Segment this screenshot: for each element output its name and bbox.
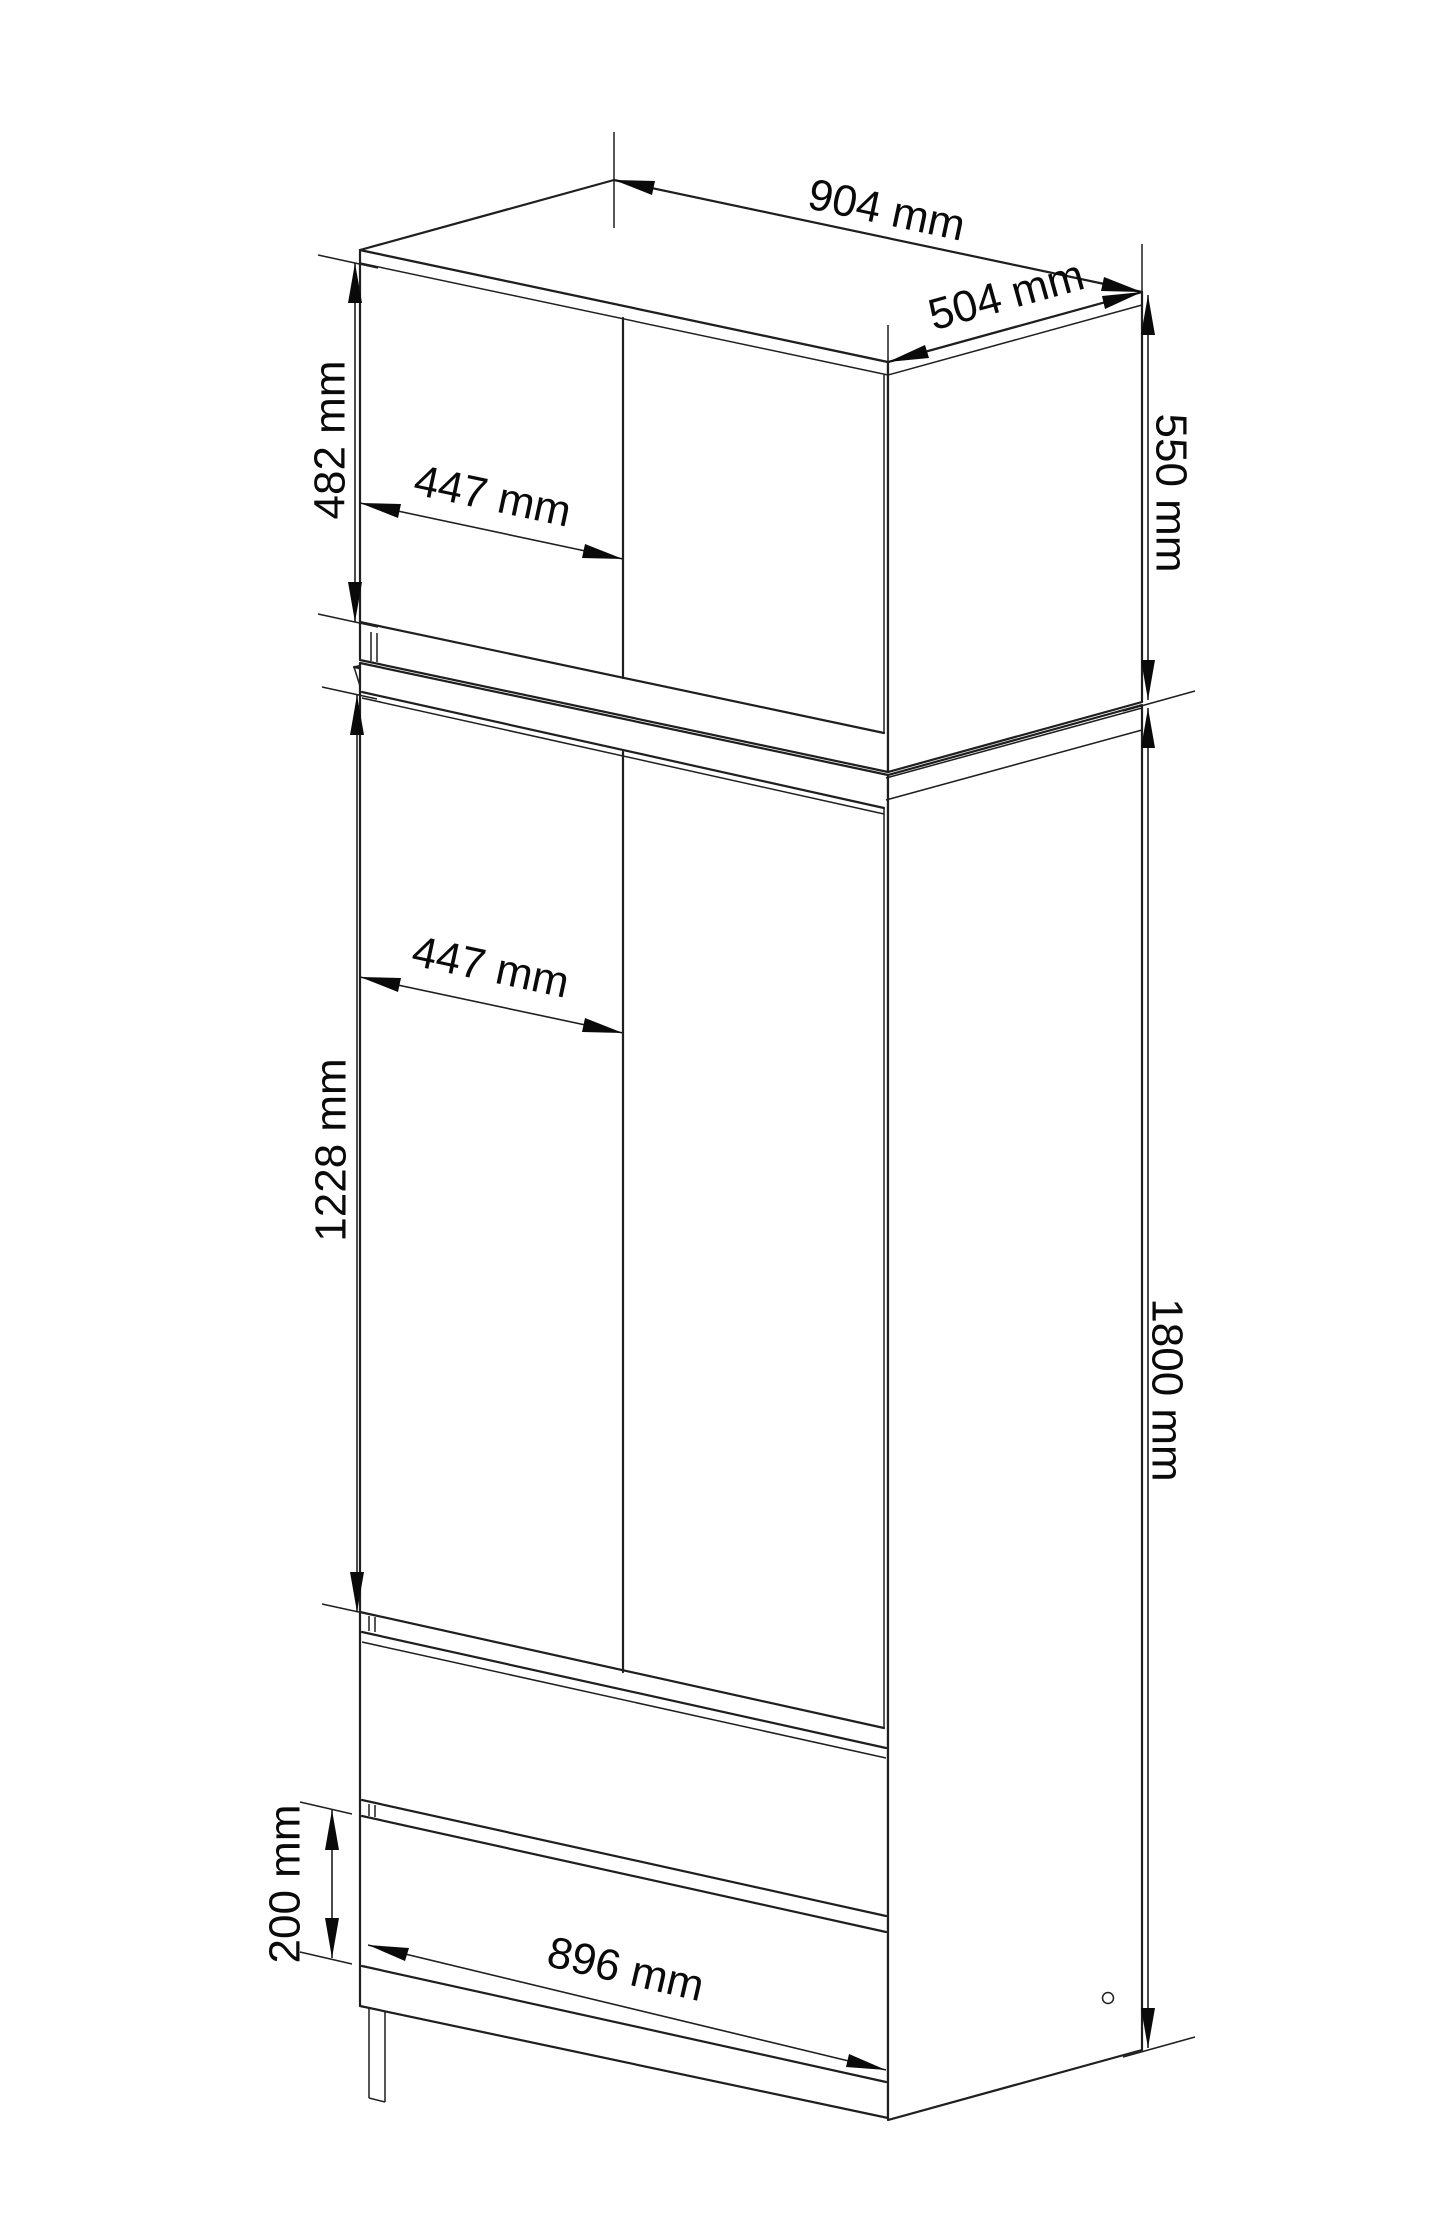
dim-label-drawer-height: 200 mm (261, 1805, 310, 1964)
arrowhead-top (325, 1810, 339, 1850)
dim-label-main-height: 1800 mm (1142, 1298, 1191, 1481)
wardrobe-technical-drawing: 904 mm 504 mm 550 mm 482 mm 447 mm (0, 0, 1445, 2238)
main-right-face (888, 705, 1142, 2120)
dim-label-top-height: 550 mm (1146, 414, 1195, 573)
main-wardrobe (360, 663, 1142, 2120)
dimension-drawer-height: 200 mm (261, 1802, 352, 1964)
arrowhead-bottom (325, 1918, 339, 1958)
dim-label-top-door-height: 482 mm (306, 361, 355, 520)
front-left-leg (369, 2008, 385, 2102)
arrowhead-right (1101, 277, 1142, 292)
dim-label-main-door-height: 1228 mm (307, 1058, 356, 1241)
